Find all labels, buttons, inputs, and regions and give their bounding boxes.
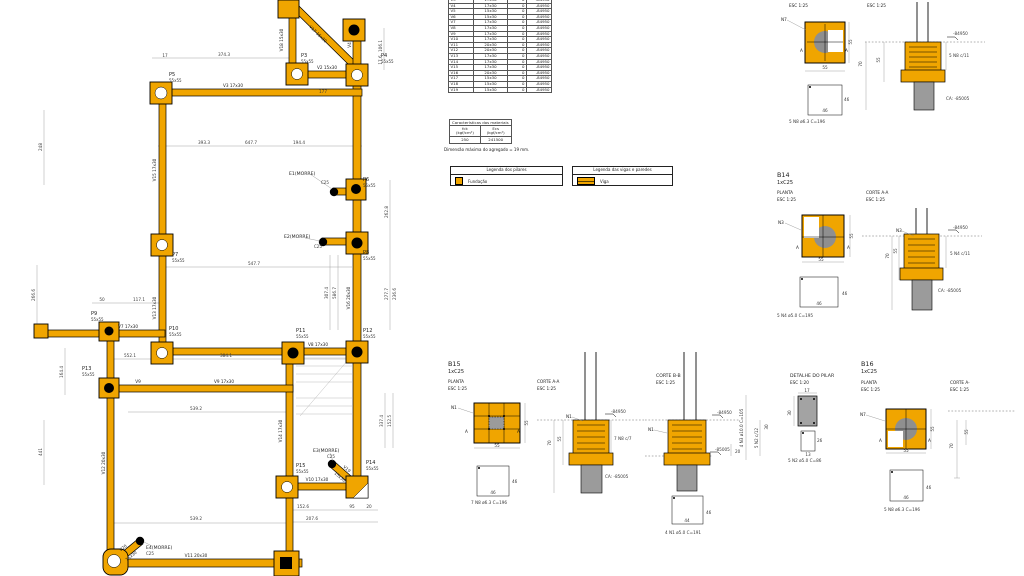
level-label: -84950 [953, 225, 968, 230]
dim-label: 55 [818, 257, 824, 262]
beam-label: V4 [347, 42, 352, 48]
dim-label: 266.6 [31, 289, 36, 301]
svg-text:55x55: 55x55 [363, 183, 376, 188]
detail-title: B15 [448, 360, 461, 368]
dim-label: 46 [926, 485, 932, 490]
morre-labels: E1(MORRE)C25 E2(MORRE)C25 E3(MORRE)C25 E… [146, 171, 339, 556]
legend-pilares: Legenda dos pilares Fundação [450, 166, 563, 186]
section-mark: A [796, 245, 799, 250]
beam-label: V7 17x30 [118, 324, 138, 329]
beam-v12 [107, 330, 114, 563]
beam-table-cell: 0 [508, 87, 527, 93]
dim-label: 30 [764, 424, 769, 430]
dim-label: 152.6 [297, 504, 309, 509]
dim-label: 177 [319, 89, 327, 94]
dim-label: 70 [949, 443, 954, 449]
dim-label: 207.6 [306, 516, 318, 521]
dim-label: 70 [885, 253, 890, 259]
svg-text:55x55: 55x55 [82, 372, 95, 377]
dim-label: 277.7 [384, 288, 389, 300]
svg-text:C25: C25 [146, 551, 154, 556]
dim-label: 55 [964, 429, 969, 435]
dim-label: 17.6 [378, 55, 383, 65]
column-labels: P355x55 P455x55 P555x55 P655x55 P755x55 … [82, 53, 394, 474]
dim-label: 30 [787, 410, 792, 416]
beam-table-cell: -84950 [527, 87, 552, 93]
beam-v11 [110, 559, 302, 567]
morre-dot-e1 [330, 188, 338, 196]
view-label: CORTE A-A [866, 190, 889, 195]
detail-b13: ESC 1:25 ESC 1:25 N7 A A 55 55 46 46 5 N… [781, 2, 985, 124]
esc-label: ESC 1:25 [777, 197, 796, 202]
dimension-lines-v [37, 28, 393, 485]
rebar-label: N3 [778, 220, 784, 225]
esc-label: ESC 1:25 [448, 386, 467, 391]
dim-label: 55 [893, 248, 898, 254]
dim-label: 26 [817, 438, 823, 443]
dim-label: 374.3 [218, 52, 230, 57]
stirrup-caption: 4 N1 ø5.0 C=191 [665, 530, 701, 535]
plan-dimensions: 374.3 17 177 393.3 647.7 194.4 547.7 117… [31, 40, 397, 521]
beam-table-cell: V19 [449, 87, 474, 93]
dim-label: 70 [858, 61, 863, 67]
detail-subtitle: 1xC25 [861, 369, 877, 375]
materials-col2-header: Ecs(kgf/cm²) [480, 126, 511, 137]
view-label: CORTE A-A [537, 379, 560, 384]
dim-label: 20 [366, 504, 372, 509]
dim-label: 50 [99, 297, 105, 302]
dim-label: 547.7 [248, 261, 260, 266]
view-label: PLANTA [861, 380, 877, 385]
dim-label: 552.1 [124, 353, 136, 358]
column-small-left [34, 324, 48, 338]
dim-label: 539.2 [190, 406, 202, 411]
view-label: CORTE A- [950, 380, 970, 385]
rebar-label: N3 [896, 228, 902, 233]
detail-b14: B14 1xC25 PLANTA ESC 1:25 CORTE A-A ESC … [777, 171, 982, 318]
materials-table: Características dos materiais fck(kgf/cm… [449, 119, 512, 144]
stirrup-caption: 5 N8 ø6.3 C=196 [789, 119, 825, 124]
dim-label: 70 [547, 440, 552, 446]
dim-label: 337.4 [379, 415, 384, 427]
stirrup-caption: 7 N8 ø6.3 C=196 [471, 500, 507, 505]
beam-label: V9 [135, 379, 141, 384]
esc-label: ESC 1:25 [789, 3, 808, 8]
legend-pilares-item: Fundação [468, 179, 487, 184]
esc-label: ESC 1:20 [790, 380, 809, 385]
dim-label: 17 [804, 388, 810, 393]
svg-text:55x55: 55x55 [301, 59, 314, 64]
legend-vigas-title: Legenda das vigas e paredes [573, 167, 672, 175]
section-mark: A [879, 438, 882, 443]
dim-label: 262.8 [384, 206, 389, 218]
svg-text:55x55: 55x55 [296, 334, 309, 339]
svg-text:55x55: 55x55 [172, 258, 185, 263]
view-label: PLANTA [777, 190, 793, 195]
dim-label: 55 [524, 420, 529, 426]
level-label: -84950 [717, 410, 732, 415]
dim-label: 46 [512, 479, 518, 484]
rebar-spacing: 5 N8 c/11 [949, 53, 970, 58]
beam-v9 [107, 385, 293, 392]
floor-plan: P355x55 P455x55 P555x55 P655x55 P755x55 … [31, 0, 397, 576]
aggregate-note: Dimensão máxima do agregado = 19 mm. [444, 147, 529, 152]
esc-label: ESC 1:25 [861, 387, 880, 392]
section-mark: A [800, 48, 803, 53]
svg-text:55x55: 55x55 [169, 78, 182, 83]
section-mark: A [845, 48, 848, 53]
section-mark: A [517, 429, 520, 434]
dim-label: 55 [849, 233, 854, 239]
beam-table-body: V317x300-84950V417x300-84950V515x300-849… [449, 0, 552, 93]
detail-title: B16 [861, 360, 874, 368]
legend-vigas: Legenda das vigas e paredes Viga [572, 166, 673, 186]
svg-text:C25: C25 [327, 454, 335, 459]
morre-dot-e4 [136, 537, 144, 545]
level-label: -84950 [611, 409, 626, 414]
beam-label: V16 20x30 [346, 286, 351, 309]
dim-label: 248 [38, 143, 43, 151]
view-label: CORTE B-B [656, 373, 681, 379]
morre-dot-e3 [328, 460, 336, 468]
rebar-count: 4 N3 ø10.0 C=105 [739, 408, 744, 447]
level-label: -85005 [715, 447, 730, 452]
esc-label: ESC 1:25 [866, 197, 885, 202]
dim-label: 106.1 [378, 40, 383, 52]
beam-v3 [152, 89, 362, 96]
dim-label: 46 [822, 108, 828, 113]
dim-label: 46 [844, 97, 850, 102]
dim-label: 46 [842, 291, 848, 296]
svg-text:55x55: 55x55 [363, 256, 376, 261]
ca-level: CA: -85005 [605, 474, 629, 479]
structural-drawing-canvas: P355x55 P455x55 P555x55 P655x55 P755x55 … [0, 0, 1024, 576]
beam-label: V18 15x30 [279, 28, 284, 51]
beam-label: V13 17x30 [152, 296, 157, 319]
level-label: -84950 [953, 31, 968, 36]
beam-label: V8 17x30 [308, 342, 328, 347]
beam-label: V15 17x30 [152, 158, 157, 181]
dim-label: 55 [822, 65, 828, 70]
dim-label: 55 [557, 436, 562, 442]
morre-label: E1(MORRE) [289, 171, 315, 177]
materials-fck-value: 250 [450, 137, 481, 143]
dim-label: 152.5 [387, 415, 392, 427]
dim-label: 20 [735, 449, 741, 454]
dim-label: 46 [816, 301, 822, 306]
svg-text:55x55: 55x55 [363, 334, 376, 339]
stair-hatch [296, 358, 352, 416]
dim-label: 117.1 [133, 297, 145, 302]
esc-label: ESC 1:25 [537, 386, 556, 391]
svg-text:C25: C25 [321, 180, 329, 185]
dim-label: 46 [903, 495, 909, 500]
rebar-spacing: 5 N4 c/11 [950, 251, 971, 256]
materials-col1-header: fck(kgf/cm²) [450, 126, 481, 137]
dim-label: 55 [494, 443, 500, 448]
dim-label: 95 [349, 504, 355, 509]
svg-text:55x55: 55x55 [296, 469, 309, 474]
dim-label: 55 [848, 39, 853, 45]
detail-corte-bb: CORTE B-B ESC 1:25 N1 -84950 -85005 20 4… [645, 352, 769, 535]
legend-pilares-title: Legenda dos pilares [451, 167, 562, 175]
rebar-label: N1 [451, 405, 457, 410]
svg-text:55x55: 55x55 [169, 332, 182, 337]
beam-label: V9 17x30 [214, 379, 234, 384]
dim-label: 194.4 [293, 140, 305, 145]
stirrup-caption: 5 N4 ø5.0 C=195 [777, 313, 813, 318]
beam-v14 [286, 352, 293, 564]
beam-v8 [159, 348, 361, 355]
ca-level: CA: -85005 [946, 96, 970, 101]
materials-ecs-value: 241500 [480, 137, 511, 143]
beam-label: V10 17x30 [306, 477, 329, 482]
detail-b16: B16 1xC25 PLANTA ESC 1:25 CORTE A- ESC 1… [860, 360, 1015, 512]
esc-label: ESC 1:25 [656, 380, 675, 385]
dim-label: 307.4 [324, 287, 329, 299]
legend-vigas-item: Viga [600, 179, 609, 184]
section-mark: A [847, 245, 850, 250]
dim-label: 236.6 [392, 288, 397, 300]
section-mark: A [465, 429, 468, 434]
rebar-spacing: 7 N8 c/7 [614, 436, 632, 441]
column-p1 [278, 0, 299, 18]
morre-label: E2(MORRE) [284, 234, 310, 240]
ca-level: CA: -85005 [938, 288, 962, 293]
stirrup-pilar [801, 431, 815, 451]
dim-label: 393.3 [198, 140, 210, 145]
dim-label: 164.4 [59, 366, 64, 378]
rebar-spacing: 5 N2 c/12 [754, 428, 759, 449]
svg-text:55x55: 55x55 [91, 317, 104, 322]
dim-label: 55 [903, 448, 909, 453]
dim-label: 647.7 [245, 140, 257, 145]
dim-label: 55 [876, 57, 881, 63]
beam-label: V11 20x30 [185, 553, 208, 558]
svg-text:C25: C25 [314, 244, 322, 249]
detail-title: B14 [777, 171, 790, 179]
beam-label: V2 15x30 [317, 65, 337, 70]
viga-icon [577, 177, 595, 185]
beam-label: V3 17x30 [223, 83, 243, 88]
svg-text:55x55: 55x55 [366, 466, 379, 471]
rebar-label: N7 [781, 17, 787, 22]
beam-label: V14 17x30 [278, 419, 283, 442]
stirrup-caption: 5 N8 ø6.3 C=196 [884, 507, 920, 512]
dim-label: 586.7 [332, 287, 337, 299]
dim-label: 13 [805, 452, 811, 457]
esc-label: ESC 1:25 [950, 387, 969, 392]
fundacao-icon [455, 177, 463, 185]
detail-subtitle: 1xC25 [448, 369, 464, 375]
dim-label: 55 [930, 426, 935, 432]
dim-label: 46 [490, 490, 496, 495]
beam-v15-v13 [159, 90, 166, 356]
view-label: DETALHE DO PILAR [790, 373, 835, 379]
beam-schedule-table: V317x300-84950V417x300-84950V515x300-849… [448, 0, 552, 93]
view-label: PLANTA [448, 379, 464, 384]
beam-labels: V2 15x30 V3 17x30 V4 V7 17x30 V8 17x30 V… [101, 24, 352, 562]
dim-label: 441 [38, 448, 43, 456]
rebar-label: N1 [566, 414, 572, 419]
beam-table-row: V1915x300-84950 [449, 87, 552, 93]
detail-pilar: DETALHE DO PILAR ESC 1:20 17 30 26 13 5 … [787, 373, 835, 463]
dim-label: 539.2 [190, 516, 202, 521]
dim-label: 44 [684, 518, 690, 523]
rebar-label: N1 [648, 427, 654, 432]
detail-b15: B15 1xC25 PLANTA ESC 1:25 CORTE A-A ESC … [448, 352, 645, 505]
dim-label: 384.1 [220, 353, 232, 358]
stirrup-caption: 5 N2 ø5.0 C=86 [788, 458, 822, 463]
dim-label: 46 [706, 510, 712, 515]
beam-label: V12 20x30 [101, 451, 106, 474]
rebar-label: N7 [860, 412, 866, 417]
section-mark: A [928, 438, 931, 443]
esc-label: ESC 1:25 [867, 3, 886, 8]
dim-label: 17 [162, 53, 168, 58]
detail-subtitle: 1xC25 [777, 180, 793, 186]
beam-table-cell: 15x30 [474, 87, 508, 93]
